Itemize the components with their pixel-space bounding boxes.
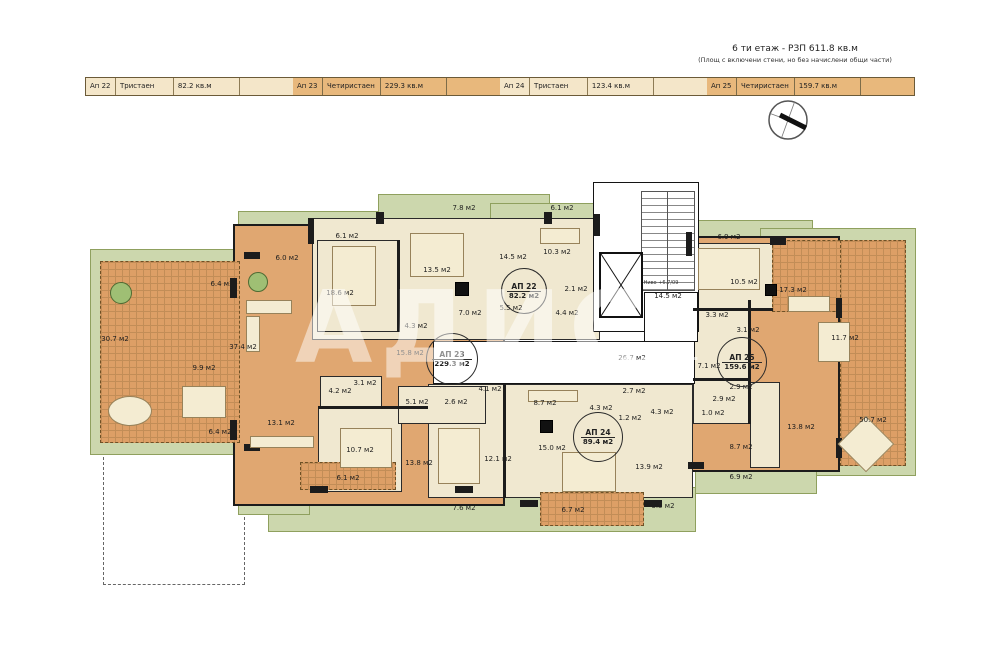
wall-pier	[594, 214, 600, 236]
wall-segment	[693, 308, 773, 311]
bathroom-zone	[693, 300, 750, 424]
sofa	[246, 300, 292, 314]
bathroom-zone	[398, 386, 486, 424]
kitchen-counter	[528, 390, 578, 402]
wall-pier	[376, 212, 384, 224]
stove	[540, 420, 553, 433]
wall-pier	[308, 218, 314, 244]
floorplan-drawing: 30.7 м26.0 м26.4 м237.4 м29.9 м213.1 м26…	[0, 0, 1000, 666]
wall-segment	[503, 384, 506, 498]
wall-pier	[455, 486, 473, 493]
floorplan-page: 6 ти етаж - РЗП 611.8 кв.м (Площ с включ…	[0, 0, 1000, 666]
wall-segment	[318, 406, 428, 409]
wall-pier	[544, 212, 552, 224]
kitchen-counter	[250, 436, 314, 448]
wall-pier	[644, 500, 662, 507]
corridor	[433, 341, 695, 384]
elevator-x-icon	[601, 254, 641, 316]
dining-table	[818, 322, 850, 362]
stair-level-note: Ниво +6.7/09	[644, 280, 679, 286]
kitchen-zone	[750, 382, 780, 468]
wall-segment	[397, 240, 400, 332]
dining-table	[182, 386, 226, 418]
wall-pier	[836, 298, 842, 318]
sofa	[246, 316, 260, 352]
wall-pier	[230, 278, 237, 298]
sofa	[540, 228, 580, 244]
wall-pier	[230, 420, 237, 440]
plant	[248, 272, 268, 292]
stove	[765, 284, 777, 296]
bed	[332, 246, 376, 306]
wall-pier	[310, 486, 328, 493]
wall-pier	[686, 232, 692, 256]
wall-pier	[770, 238, 786, 245]
bed	[698, 248, 760, 290]
terrace-tiles-bottom	[540, 492, 644, 526]
bed	[438, 428, 480, 484]
wall-pier	[520, 500, 538, 507]
elevator	[599, 252, 643, 318]
bed	[410, 233, 464, 277]
wall-segment	[693, 378, 750, 381]
wall-pier	[688, 462, 704, 469]
stove	[455, 282, 469, 296]
entry-hall	[644, 292, 698, 342]
wall-pier	[244, 252, 260, 259]
bed	[562, 452, 616, 492]
stair-divider	[667, 191, 668, 291]
wall-segment	[748, 300, 751, 424]
sofa	[788, 296, 830, 312]
bed	[340, 428, 392, 468]
bathroom-zone	[320, 376, 382, 408]
plant	[110, 282, 132, 304]
terrace-green-band	[695, 470, 817, 494]
terrace-table	[108, 396, 152, 426]
